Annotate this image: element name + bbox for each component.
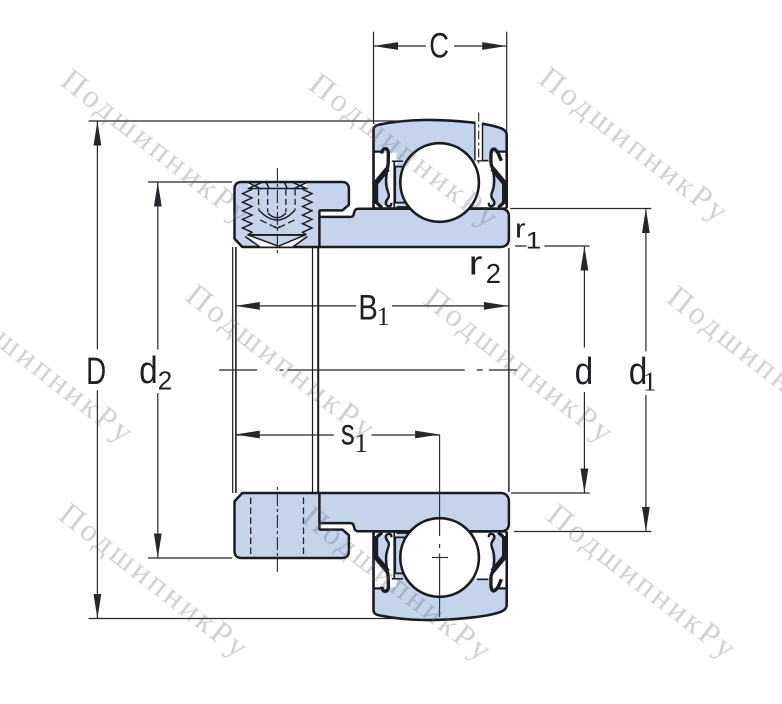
svg-text:B: B: [358, 288, 378, 327]
svg-text:2: 2: [486, 258, 501, 289]
svg-text:ПодшипникРу: ПодшипникРу: [541, 496, 746, 667]
svg-text:ПодшипникРу: ПодшипникРу: [661, 278, 782, 449]
svg-text:1: 1: [377, 302, 390, 331]
svg-text:r: r: [469, 245, 483, 283]
svg-text:ПодшипникРу: ПодшипникРу: [180, 276, 385, 447]
svg-text:ПодшипникРу: ПодшипникРу: [0, 280, 143, 451]
svg-text:2: 2: [158, 365, 172, 395]
svg-text:d: d: [575, 350, 594, 392]
svg-text:1: 1: [526, 226, 542, 254]
svg-text:r: r: [515, 214, 526, 244]
svg-text:ПодшипникРу: ПодшипникРу: [533, 59, 738, 230]
svg-text:1: 1: [643, 367, 657, 397]
svg-text:C: C: [429, 26, 449, 65]
svg-text:d: d: [139, 349, 158, 391]
svg-text:ПодшипникРу: ПодшипникРу: [53, 495, 258, 666]
